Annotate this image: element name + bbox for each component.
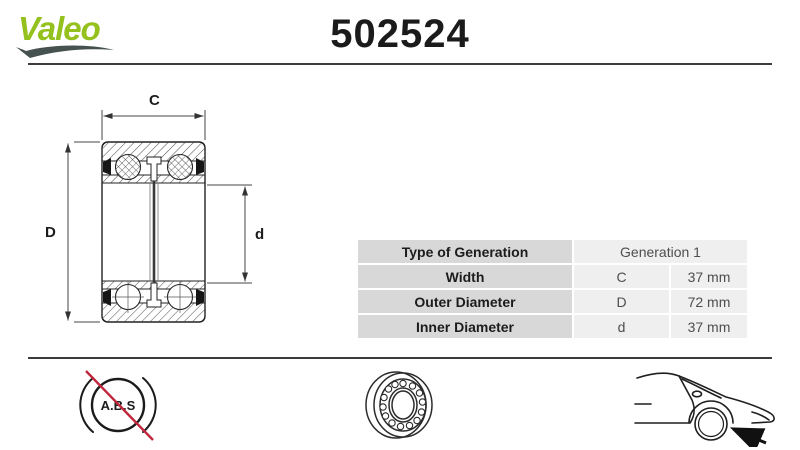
spec-symbol-outer-diameter: D <box>574 290 669 313</box>
footer-divider <box>28 357 772 359</box>
dim-label-d: d <box>255 226 264 243</box>
dim-label-D: D <box>45 224 56 241</box>
spec-label-outer-diameter: Outer Diameter <box>358 290 572 313</box>
spec-label-width: Width <box>358 265 572 288</box>
dimension-width-C <box>102 110 205 140</box>
dimension-outer-D <box>68 142 100 322</box>
car-front-wheel-icon <box>633 362 783 447</box>
dim-label-C: C <box>149 92 160 109</box>
spec-value-inner-diameter: 37 mm <box>671 315 747 338</box>
bearing-cross-section-drawing: C D d <box>30 85 280 345</box>
spec-symbol-width: C <box>574 265 669 288</box>
spec-symbol-inner-diameter: d <box>574 315 669 338</box>
spec-table: Type of Generation Generation 1 Width C … <box>358 240 747 338</box>
spec-value-outer-diameter: 72 mm <box>671 290 747 313</box>
dimension-inner-d <box>207 185 252 283</box>
bearing-section <box>102 142 205 322</box>
product-sheet: Valeo 502524 C <box>0 0 800 450</box>
spec-value-generation: Generation 1 <box>574 240 747 263</box>
header-divider <box>28 63 772 65</box>
spec-value-width: 37 mm <box>671 265 747 288</box>
bearing-icon <box>358 366 442 444</box>
spec-label-generation: Type of Generation <box>358 240 572 263</box>
abs-crossed-icon: A.B.S <box>60 366 176 444</box>
spec-label-inner-diameter: Inner Diameter <box>358 315 572 338</box>
part-number: 502524 <box>0 12 800 57</box>
